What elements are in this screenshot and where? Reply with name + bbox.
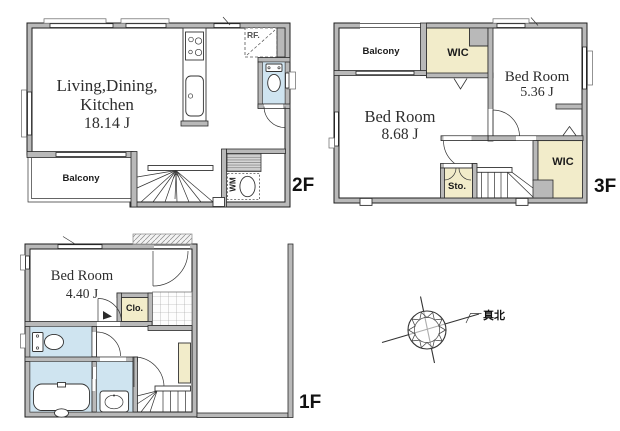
porch-hatch [133,234,192,244]
bathtub-icon [34,384,90,411]
balcony-label-2f: Balcony [43,173,119,184]
stove-icon [186,32,204,60]
true-north-label: 真北 [483,307,505,323]
washer-drum-icon [240,176,255,196]
toilet-icon-1f [33,333,44,352]
floor-label-3f: 3F [594,176,616,198]
room-label-bedroom-440: Bed Room 4.40 J [30,268,134,302]
bedroom-536-name: Bed Room [492,69,582,85]
bedroom-440-name: Bed Room [30,268,134,285]
washer-label: WM [229,176,238,194]
bedroom-868-area: 8.68 J [350,126,450,144]
entrance-tiles [153,292,193,326]
ldk-name-line1: Living,Dining, [28,76,186,95]
bedroom-868-name: Bed Room [350,107,450,126]
wic-top-label: WIC [436,47,480,59]
bedroom-536-area: 5.36 J [492,85,582,101]
compass-icon [382,297,482,364]
fridge-label: RF. [247,30,260,40]
wic-bottom-label: WIC [541,156,585,168]
floor-label-2f: 2F [292,175,314,197]
toilet-icon [266,64,282,72]
room-label-ldk: Living,Dining, Kitchen 18.14 J [28,76,186,133]
room-label-bedroom-868: Bed Room 8.68 J [350,107,450,144]
stairs-2f [137,171,213,203]
ldk-area-label: 18.14 J [28,114,186,133]
floorplan-1f [21,234,294,418]
bedroom-440-area: 4.40 J [30,285,134,302]
stairs-handrail-3f [477,168,512,173]
stairs-handrail-2f [148,166,213,171]
storage-label: Sto. [441,181,473,192]
counter-louver [227,154,261,172]
stairs-3f [482,172,534,198]
room-label-bedroom-536: Bed Room 5.36 J [492,69,582,101]
stairs-handrail-1f [155,386,191,391]
shoe-cabinet [179,343,191,383]
balcony-label-3f: Balcony [347,46,415,57]
floor-label-1f: 1F [299,392,321,414]
closet-label: Clo. [120,303,149,313]
ldk-name-line2: Kitchen [28,95,186,114]
stairs-1f [137,391,186,412]
floorplan-sheet: Living,Dining, Kitchen 18.14 J Balcony R… [0,0,620,431]
floorplan-drawing [0,0,620,431]
